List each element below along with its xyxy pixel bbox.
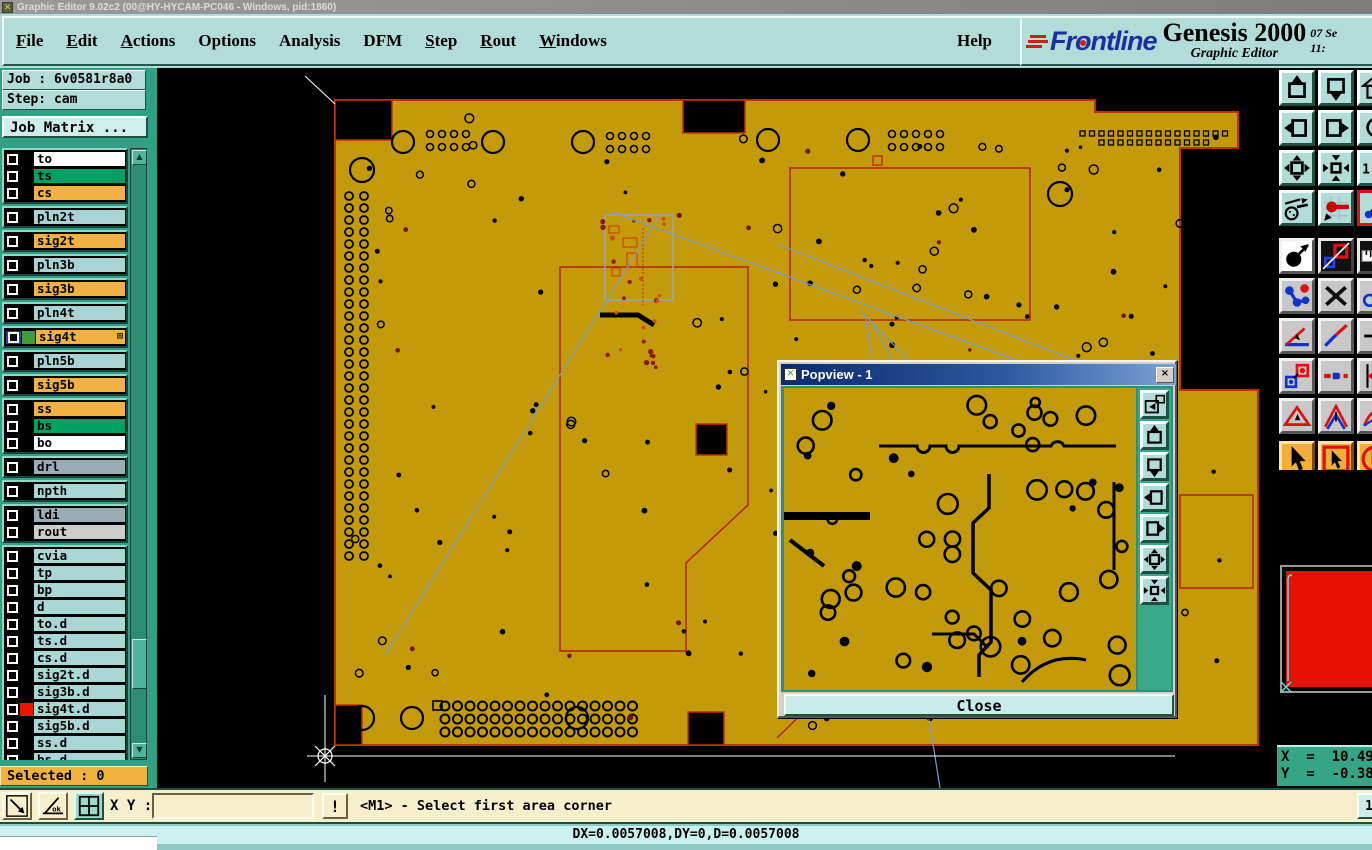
menu-edit[interactable]: Edit [66,31,97,51]
net-highlight-icon[interactable] [1318,190,1354,226]
layer-name-label: pln3b [34,258,125,272]
layer-group: drl [2,456,128,478]
layer-list: totscspln2tsig2tpln3bsig3bpln4tsig4t⊞pln… [2,148,128,760]
popview-toolbar [1138,388,1171,690]
layer-visibility-checkbox[interactable] [6,618,19,631]
popview-view-pan-left-icon[interactable] [1140,483,1169,512]
layer-group: totscs [2,148,128,204]
layer-color-swatch[interactable] [20,509,33,522]
layer-color-swatch[interactable] [20,669,33,682]
layer-color-swatch[interactable] [20,703,33,716]
layer-visibility-checkbox[interactable] [6,526,19,539]
layer-row-to.d[interactable]: to.d [5,616,125,632]
popview-close-button[interactable]: Close [784,694,1174,716]
layer-name-label: ts.d [34,634,125,648]
layer-visibility-checkbox[interactable] [6,686,19,699]
layer-visibility-checkbox[interactable] [6,283,19,296]
layer-name-label: ss.d [34,736,125,750]
layer-row-bp[interactable]: bp [5,582,125,598]
layer-name-label: pln5b [34,354,125,368]
layer-name-label: pln4t [34,306,125,320]
title-bar: ✕ Graphic Editor 9.02c2 (00@HY-HYCAM-PC0… [0,0,1372,14]
layer-name-label: sig5b [34,378,125,392]
layer-name-label: npth [34,484,125,498]
bottom-left-blank [0,836,157,850]
layer-row-bo[interactable]: bo [5,435,125,451]
net-dots-icon[interactable] [1279,278,1315,314]
layer-color-swatch[interactable] [20,635,33,648]
view-home-icon[interactable] [1357,70,1372,106]
layer-name-label: bp [34,583,125,597]
layer-color-swatch[interactable] [20,737,33,750]
layer-name-label: sig3b.d [34,685,125,699]
view-pan-down-icon[interactable] [1318,70,1354,106]
layer-color-swatch[interactable] [20,355,33,368]
layer-visibility-checkbox[interactable] [6,550,19,563]
layer-name-label: cvia [34,549,125,563]
popview-zoom-out-view-icon[interactable] [1140,545,1169,574]
layer-color-swatch[interactable] [20,567,33,580]
application-window: ✕ Graphic Editor 9.02c2 (00@HY-HYCAM-PC0… [0,0,1372,850]
right-panel: 1:1 X = 10.4932 Y = -0.3807 [1277,68,1372,788]
layer-color-swatch[interactable] [20,235,33,248]
layer-name-label: ldi [34,508,125,522]
popview-copy-view-icon[interactable] [1140,390,1169,419]
popview-title-bar[interactable]: ✕ Popview - 1 × [781,364,1176,385]
layer-group: pln3b [2,254,128,276]
layer-name-label: ss [34,402,125,416]
view-rotate-icon[interactable] [1357,110,1372,146]
squares-copy-icon[interactable] [1279,358,1315,394]
layer-visibility-checkbox[interactable] [6,567,19,580]
layer-row-cvia[interactable]: cvia [5,548,125,564]
side-cut-button[interactable]: 1 [1357,793,1372,819]
layer-visibility-checkbox[interactable] [6,485,19,498]
layer-visibility-checkbox[interactable] [6,437,19,450]
layer-visibility-checkbox[interactable] [6,703,19,716]
view-pan-left-icon[interactable] [1279,110,1315,146]
layer-visibility-checkbox[interactable] [6,652,19,665]
layer-row-sig3b[interactable]: sig3b [5,281,125,297]
popview-view-pan-up-icon[interactable] [1140,421,1169,450]
popview-view-pan-down-icon[interactable] [1140,452,1169,481]
cursor-coordinates: X = 10.4932 Y = -0.3807 [1277,745,1372,786]
layer-name-label: sig2t [34,234,125,248]
layer-visibility-checkbox[interactable] [6,259,19,272]
layer-name-label: to.d [34,617,125,631]
menu-options[interactable]: Options [198,31,256,51]
window-title: Graphic Editor 9.02c2 (00@HY-HYCAM-PC046… [17,2,336,13]
date-text: 07 Se [1310,26,1337,41]
layer-name-label: cs.d [34,651,125,665]
layer-color-swatch[interactable] [20,187,33,200]
layer-row-cs[interactable]: cs [5,185,125,201]
layer-row-ss.d[interactable]: ss.d [5,735,125,751]
layer-name-label: sig2t.d [34,668,125,682]
zoom-one-to-one-icon[interactable]: 1:1 [1357,150,1372,186]
frontline-logo: Frontline [1026,26,1157,57]
sidebar: Job : 6v0581r8a0 Step: cam Job Matrix ..… [0,68,157,788]
layer-name-label: sig4t⊞ [36,330,125,344]
resize-diag-icon[interactable] [2,792,32,820]
arc-tool-icon[interactable] [1357,398,1372,434]
layer-group: pln2t [2,206,128,228]
layer-color-swatch[interactable] [20,153,33,166]
layer-group: npth [2,480,128,502]
layer-row-sig3b.d[interactable]: sig3b.d [5,684,125,700]
layer-row-npth[interactable]: npth [5,483,125,499]
app-icon: ✕ [2,2,13,13]
layer-row-rout[interactable]: rout [5,524,125,540]
layer-row-ts.d[interactable]: ts.d [5,633,125,649]
layer-name-label: drl [34,460,125,474]
align-edge-icon[interactable] [1357,358,1372,394]
layer-visibility-checkbox[interactable] [6,170,19,183]
scroll-down-icon[interactable]: ▼ [132,743,147,758]
popview-zoom-view[interactable] [784,388,1136,690]
logo-text: Frontline [1050,26,1157,57]
view-extents-art [1277,470,1372,745]
layer-row-sig5b[interactable]: sig5b [5,377,125,393]
menu-row: FileEditActionsOptionsAnalysisDFMStepRou… [0,14,1372,68]
layer-visibility-checkbox[interactable] [6,211,19,224]
active-layer-marker-icon: ⊞ [117,330,123,344]
layer-name-label: sig4t.d [34,702,125,716]
logo-speed-lines-icon [1026,35,1048,48]
pad-arrow-icon[interactable] [1279,238,1315,274]
command-bar: X Y : ! <M1> - Select first area corner … [0,788,1372,822]
layer-visibility-checkbox[interactable] [6,379,19,392]
layer-color-swatch[interactable] [20,259,33,272]
layer-row-bs.d[interactable]: bs.d [5,752,125,760]
layer-color-swatch[interactable] [20,652,33,665]
coord-x: X = 10.4932 [1281,749,1372,766]
layer-name-label: to [34,152,125,166]
layer-name-label: ts [34,169,125,183]
layer-group: sig4t⊞ [2,326,128,348]
layer-color-swatch[interactable] [20,601,33,614]
layer-row-ts[interactable]: ts [5,168,125,184]
layer-name-label: bo [34,436,125,450]
layer-color-swatch[interactable] [20,403,33,416]
ruler-icon[interactable] [1357,238,1372,274]
layer-group: sig5b [2,374,128,396]
circle-arrow-icon[interactable] [1357,278,1372,314]
menu-analysis[interactable]: Analysis [279,31,340,51]
layer-row-tp[interactable]: tp [5,565,125,581]
selected-count-bar: Selected : 0 [0,766,148,786]
layer-name-label: sig5b.d [34,719,125,733]
layer-color-swatch[interactable] [20,211,33,224]
popview-title: Popview - 1 [801,367,873,382]
angle-ok-icon[interactable]: ok [38,792,68,820]
layer-visibility-checkbox[interactable] [6,635,19,648]
layer-list-scrollbar[interactable]: ▲ ▼ [130,148,147,760]
popview-body [781,386,1173,692]
layer-row-sig2t[interactable]: sig2t [5,233,125,249]
layer-color-swatch[interactable] [20,526,33,539]
layer-row-bs[interactable]: bs [5,418,125,434]
menu-bar: FileEditActionsOptionsAnalysisDFMStepRou… [2,16,1028,66]
layer-color-swatch[interactable] [20,754,33,761]
layer-color-swatch[interactable] [20,720,33,733]
layer-row-d[interactable]: d [5,599,125,615]
product-name: Genesis 2000 [1163,20,1307,46]
layer-visibility-checkbox[interactable] [6,187,19,200]
layer-row-sig5b.d[interactable]: sig5b.d [5,718,125,734]
layer-row-sig4t[interactable]: sig4t⊞ [5,329,125,345]
layer-color-swatch[interactable] [20,379,33,392]
layer-row-pln5b[interactable]: pln5b [5,353,125,369]
zoom-in-view-icon[interactable] [1318,150,1354,186]
layer-visibility-checkbox[interactable] [6,153,19,166]
product-subtitle: Graphic Editor [1191,46,1279,62]
layer-color-swatch[interactable] [22,331,35,344]
move-arrow-icon[interactable] [1357,318,1372,354]
grid-window-icon[interactable] [74,792,104,820]
layer-visibility-checkbox[interactable] [6,754,19,761]
menu-windows[interactable]: Windows [539,31,607,51]
brand-panel: Frontline Genesis 2000 Graphic Editor 07… [1020,16,1372,66]
netlist-icon[interactable] [1357,190,1372,226]
layer-color-swatch[interactable] [20,461,33,474]
prompt-message: <M1> - Select first area corner [360,798,612,814]
menu-help[interactable]: Help [957,31,992,51]
layer-visibility-checkbox[interactable] [6,235,19,248]
layer-color-swatch[interactable] [20,307,33,320]
popview-icon: ✕ [784,368,797,381]
coordinate-input[interactable] [152,793,314,819]
layer-color-swatch[interactable] [20,550,33,563]
layer-name-label: bs [34,419,125,433]
job-name-box: Job : 6v0581r8a0 [2,70,146,90]
layer-name-label: cs [34,186,125,200]
alert-button[interactable]: ! [322,793,348,819]
layer-visibility-checkbox[interactable] [6,307,19,320]
popview-view-pan-right-icon[interactable] [1140,514,1169,543]
menu-actions[interactable]: Actions [121,31,176,51]
scroll-up-icon[interactable]: ▲ [132,150,147,165]
chevron-tool-icon[interactable] [1318,398,1354,434]
view-toolbar: 1:1 [1277,68,1372,470]
layer-row-sig2t.d[interactable]: sig2t.d [5,667,125,683]
layer-visibility-checkbox[interactable] [6,737,19,750]
layer-name-label: pln2t [34,210,125,224]
xy-label: X Y : [110,798,152,814]
layer-name-label: tp [34,566,125,580]
layer-visibility-checkbox[interactable] [6,669,19,682]
layer-row-pln2t[interactable]: pln2t [5,209,125,225]
layer-visibility-checkbox[interactable] [6,461,19,474]
close-icon[interactable]: × [1156,367,1174,383]
layer-row-sig4t.d[interactable]: sig4t.d [5,701,125,717]
view-pan-right-icon[interactable] [1318,110,1354,146]
layer-visibility-checkbox[interactable] [6,509,19,522]
layer-group: ssbsbo [2,398,128,454]
layer-name-label: rout [34,525,125,539]
layer-group: pln5b [2,350,128,372]
svg-text:1:1: 1:1 [1362,162,1372,177]
layer-group: ldirout [2,504,128,543]
layer-visibility-checkbox[interactable] [6,584,19,597]
coord-y: Y = -0.3807 [1281,766,1372,783]
layer-name-label: d [34,600,125,614]
layer-color-swatch[interactable] [20,584,33,597]
time-text: 11: [1310,41,1337,56]
status-bar: DX=0.0057008,DY=0,D=0.0057008 [0,822,1372,850]
menu-dfm[interactable]: DFM [363,31,402,51]
layer-color-swatch[interactable] [20,437,33,450]
layer-row-cs.d[interactable]: cs.d [5,650,125,666]
menu-file[interactable]: File [16,31,43,51]
layer-color-swatch[interactable] [20,686,33,699]
delete-x-icon[interactable] [1318,278,1354,314]
layer-color-swatch[interactable] [20,283,33,296]
job-matrix-button[interactable]: Job Matrix ... [2,116,148,138]
step-name-box: Step: cam [2,90,146,110]
layer-visibility-checkbox[interactable] [6,601,19,614]
layer-name-label: bs.d [34,753,125,760]
layer-row-pln3b[interactable]: pln3b [5,257,125,273]
layer-visibility-checkbox[interactable] [6,331,21,344]
layer-name-label: sig3b [34,282,125,296]
layer-group: pln4t [2,302,128,324]
overview-panel[interactable] [1277,470,1372,745]
menu-step[interactable]: Step [425,31,457,51]
layer-row-to[interactable]: to [5,151,125,167]
layer-group: sig3b [2,278,128,300]
svg-text:ok: ok [52,805,61,814]
delta-readout: DX=0.0057008,DY=0,D=0.0057008 [0,826,1372,844]
layer-row-drl[interactable]: drl [5,459,125,475]
layer-color-swatch[interactable] [20,170,33,183]
layer-visibility-checkbox[interactable] [6,720,19,733]
layer-row-pln4t[interactable]: pln4t [5,305,125,321]
layer-visibility-checkbox[interactable] [6,420,19,433]
layer-color-swatch[interactable] [20,420,33,433]
popview-zoom-in-view-icon[interactable] [1140,576,1169,605]
menu-rout[interactable]: Rout [480,31,516,51]
popview-pcb-art [784,388,1136,690]
view-pan-up-icon[interactable] [1279,70,1315,106]
layer-group: cviatpbpdto.dts.dcs.dsig2t.dsig3b.dsig4t… [2,545,128,760]
layer-row-ss[interactable]: ss [5,401,125,417]
popview-window[interactable]: ✕ Popview - 1 × Close [777,360,1177,718]
line-measure-icon[interactable] [1318,318,1354,354]
dash-line-icon[interactable] [1318,358,1354,394]
layer-color-swatch[interactable] [20,485,33,498]
layer-visibility-checkbox[interactable] [6,403,19,416]
zoom-out-view-icon[interactable] [1279,150,1315,186]
triangle-tool-icon[interactable] [1279,398,1315,434]
layer-row-ldi[interactable]: ldi [5,507,125,523]
angle-measure-icon[interactable] [1279,318,1315,354]
layer-visibility-checkbox[interactable] [6,355,19,368]
layer-color-swatch[interactable] [20,618,33,631]
layer-compare-icon[interactable] [1318,238,1354,274]
scroll-thumb[interactable] [132,639,147,689]
setup-tools-icon[interactable] [1279,190,1315,226]
layer-group: sig2t [2,230,128,252]
